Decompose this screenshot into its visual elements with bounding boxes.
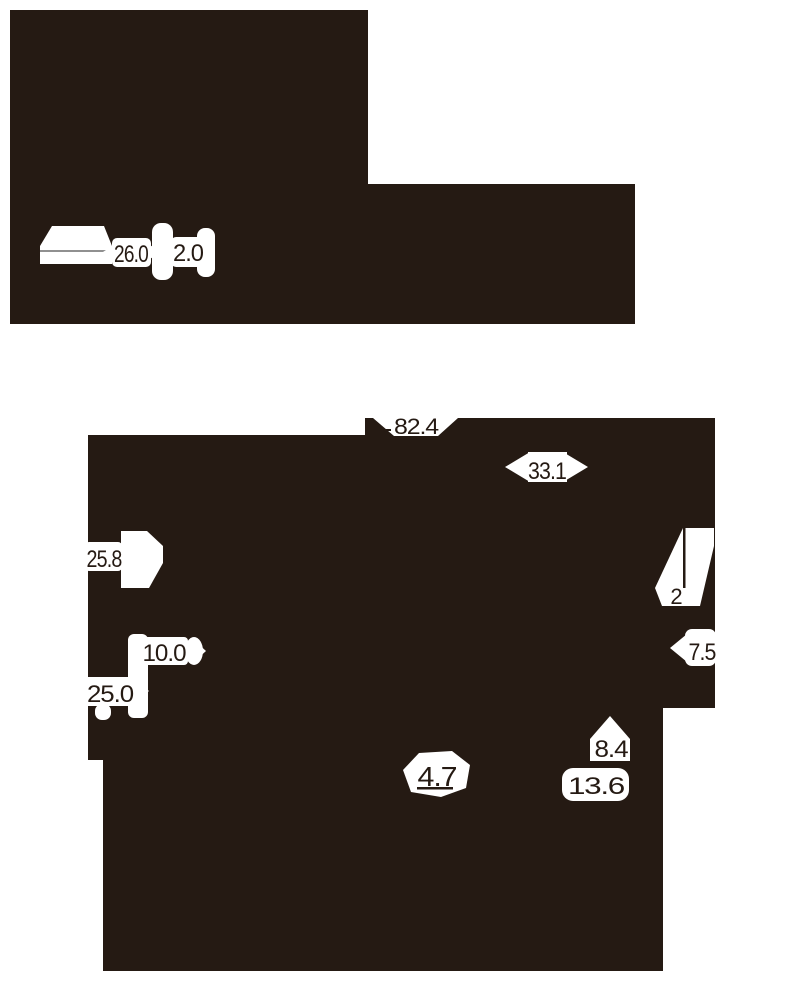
extension-bar (152, 223, 173, 280)
top-view-silhouette (10, 10, 635, 324)
dim-overall-width-label: 82.4 (394, 414, 439, 439)
dim-notch-label: 8.4 (595, 736, 629, 763)
extension-line (683, 528, 686, 588)
drawing-canvas: 26.0 2.0 82.4 33.1 25.8 2 7.5 10.0 (0, 0, 800, 985)
slab-shade-line (40, 250, 112, 252)
dim-lower-left-label: 25.0 (87, 681, 134, 708)
dim-right-gap-label: 2 (670, 584, 682, 609)
dim-bottom-center-label: 4.7 (418, 761, 457, 792)
dim-pitch-label: 10.0 (143, 640, 187, 667)
technical-drawing: 26.0 2.0 82.4 33.1 25.8 2 7.5 10.0 (0, 0, 800, 985)
front-view-silhouette (88, 418, 715, 971)
slab-top-face (40, 226, 112, 246)
dim-thickness-label: 2.0 (173, 240, 204, 267)
dim-right-width-label: 7.5 (689, 639, 717, 666)
dim-bottom-right-label: 13.6 (568, 773, 625, 800)
slab-front-face (40, 246, 112, 264)
dim-upper-left-label: 25.8 (87, 546, 123, 573)
dim-length-label: 26.0 (114, 241, 149, 268)
dim-top-offset-label: 33.1 (528, 458, 567, 485)
leader-tick (382, 429, 391, 431)
